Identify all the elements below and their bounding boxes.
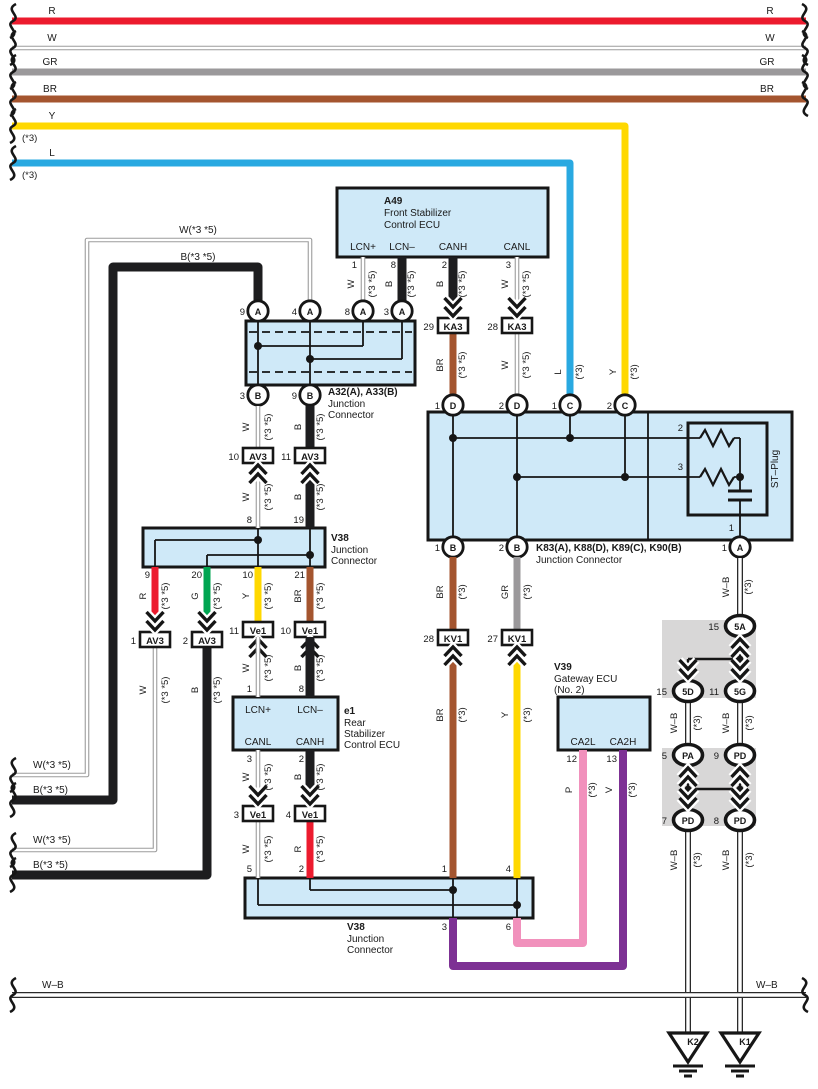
low-b-code: B xyxy=(190,687,201,693)
drop-l-code: L xyxy=(553,369,564,374)
a32-w-note: (*3 *5) xyxy=(263,414,274,441)
ground-k2-label: K2 xyxy=(687,1037,699,1047)
pin-2b-letter: B xyxy=(514,543,521,553)
st-plug-pin2: 2 xyxy=(678,423,683,434)
v38t-num-19: 19 xyxy=(293,515,304,526)
v38t-num-21: 21 xyxy=(294,570,305,581)
st-plug-pin1: 1 xyxy=(729,523,734,534)
v38t-sub2: Connector xyxy=(331,556,378,567)
v38b-num-3: 3 xyxy=(442,922,447,933)
kv1-y-note: (*3) xyxy=(522,707,533,722)
drop-y-note: (*3) xyxy=(629,364,640,379)
ve1-11-name: Ve1 xyxy=(250,626,267,637)
v38-r-note: (*3 *5) xyxy=(160,583,171,610)
pin-2c-num: 2 xyxy=(607,401,612,412)
ve1-w-code: W xyxy=(241,663,252,672)
av3-1-num: 1 xyxy=(131,636,136,647)
ka3-w-code: W xyxy=(500,360,511,369)
e1-name1: Rear xyxy=(344,718,366,729)
pin-1b-letter: B xyxy=(450,543,457,553)
ve1-4-num: 4 xyxy=(286,810,291,821)
v38-top-junction-box xyxy=(143,528,325,567)
v38b-num-4: 4 xyxy=(506,864,511,875)
v39-pin-ca2l: CA2L xyxy=(570,737,595,748)
wb-bus-label-left: W–B xyxy=(42,980,64,991)
bus-label-r-right: R xyxy=(766,6,773,17)
exit2-label-w: W(*3 *5) xyxy=(33,835,71,846)
c5g-num: 11 xyxy=(709,687,719,698)
a32-junction-box xyxy=(246,321,415,385)
c5a-num: 15 xyxy=(708,622,719,633)
av3-w-code: W xyxy=(241,492,252,501)
av3-b-note: (*3 *5) xyxy=(315,484,326,511)
v38b-num-2: 2 xyxy=(299,864,304,875)
st-plug-pin3: 3 xyxy=(678,462,683,473)
e1-num-canh: 2 xyxy=(299,754,304,765)
exit1-label-b: B(*3 *5) xyxy=(33,785,68,796)
gb1-l-note: (*3) xyxy=(692,715,703,730)
av3-11-num: 11 xyxy=(281,452,291,463)
ground-bars-icon xyxy=(673,1066,703,1076)
pin-4a-letter: A xyxy=(307,307,314,317)
v38b-sub1: Junction xyxy=(347,934,384,945)
ka3-29-num: 29 xyxy=(423,322,434,333)
drop-y-code: Y xyxy=(608,368,619,375)
pin-1c-num: 1 xyxy=(552,401,557,412)
drop-l-note: (*3) xyxy=(574,364,585,379)
cpd7-num: 7 xyxy=(662,816,667,827)
v39-name2: (No. 2) xyxy=(554,685,585,696)
gb2-l-note: (*3) xyxy=(692,852,703,867)
v38-br-code: BR xyxy=(293,589,304,602)
loop-label-w: W(*3 *5) xyxy=(179,225,217,236)
st-plug-label: ST–Plug xyxy=(770,450,781,488)
v39-v-code: V xyxy=(604,786,615,793)
e1-ecu: W (*3 *5) B (*3 *5) 1 8 LCN+ LCN– CANL C… xyxy=(234,637,400,878)
e1-code: e1 xyxy=(344,706,356,717)
ka3-28-name: KA3 xyxy=(507,322,526,333)
cpa-num: 5 xyxy=(662,751,667,762)
wiring-diagram-page: R W GR BR Y (*3) L (*3) R W GR BR W(*3 *… xyxy=(0,0,818,1089)
a49-code: A49 xyxy=(384,196,403,207)
gb2-r-note: (*3) xyxy=(744,852,755,867)
gb1-r-note: (*3) xyxy=(744,715,755,730)
a32-b-code: B xyxy=(293,424,304,430)
gb1-r-code: W–B xyxy=(721,713,732,734)
c5g-name: 5G xyxy=(734,687,746,697)
kb-gr-code: GR xyxy=(500,585,511,599)
pin-1b-num: 1 xyxy=(435,543,440,554)
v39-p-code: P xyxy=(564,787,575,793)
ve1-4-name: Ve1 xyxy=(302,810,319,821)
a49-lcnn-code: B xyxy=(384,281,395,287)
kb-wb-code: W–B xyxy=(721,577,732,598)
v38-lower-connectors: 1 AV3 2 AV3 11 Ve1 10 Ve1 R (*3 *5) G (*… xyxy=(131,567,326,703)
pin-2c-letter: C xyxy=(622,401,629,411)
e1-pin-canh: CANH xyxy=(296,737,324,748)
a49-num-lcnn: 8 xyxy=(391,260,396,271)
a49-canh-note: (*3 *5) xyxy=(457,271,468,298)
kv1-y-code: Y xyxy=(500,711,511,718)
a49-num-canh: 2 xyxy=(442,260,447,271)
ka3-w-note: (*3 *5) xyxy=(521,352,532,379)
cpd9-name: PD xyxy=(734,751,747,761)
cpd8-num: 8 xyxy=(714,816,719,827)
v38b-num-1: 1 xyxy=(442,864,447,875)
a49-canl-code: W xyxy=(500,279,511,288)
pin-1d-letter: D xyxy=(450,401,457,411)
pin-9b-num: 9 xyxy=(292,391,297,402)
c5d-name: 5D xyxy=(682,687,694,697)
v38-bottom-junction-box xyxy=(245,878,533,918)
av3-10-num: 10 xyxy=(228,452,239,463)
ve1-3-num: 3 xyxy=(234,810,239,821)
bus-label-l-left: L xyxy=(49,148,55,159)
av3-1-name: AV3 xyxy=(146,636,164,647)
a49-lcnp-note: (*3 *5) xyxy=(367,271,378,298)
e1-num-lcnn: 8 xyxy=(299,684,304,695)
av3-b-code: B xyxy=(293,494,304,500)
low-b-note: (*3 *5) xyxy=(212,677,223,704)
a49-pin-lcnn: LCN– xyxy=(389,242,415,253)
gb2-l-code: W–B xyxy=(669,850,680,871)
kb-gr-note: (*3) xyxy=(522,584,533,599)
v38t-num-10: 10 xyxy=(242,570,253,581)
ground-bars-icon xyxy=(725,1066,755,1076)
v39-v-note: (*3) xyxy=(627,782,638,797)
av3-10-name: AV3 xyxy=(249,452,267,463)
kb-br-code: BR xyxy=(435,585,446,598)
pin-3a-num: 3 xyxy=(384,307,389,318)
bus-note-y: (*3) xyxy=(22,133,37,144)
pin-2d-letter: D xyxy=(514,401,521,411)
v38t-num-8: 8 xyxy=(247,515,252,526)
pin-2d-num: 2 xyxy=(499,401,504,412)
e1-num-canl: 3 xyxy=(247,754,252,765)
e1-canh-note: (*3 *5) xyxy=(315,764,326,791)
break-symbols-left xyxy=(10,4,16,180)
ve1-10-name: Ve1 xyxy=(302,626,319,637)
a49-canl-note: (*3 *5) xyxy=(521,271,532,298)
v38t-title: V38 xyxy=(331,533,349,544)
ve1low-w-code: W xyxy=(241,844,252,853)
kv1-27-num: 27 xyxy=(487,634,498,645)
c5d-num: 15 xyxy=(656,687,667,698)
kb-br-note: (*3) xyxy=(457,584,468,599)
bus-label-w-left: W xyxy=(47,33,57,44)
a32-sub2: Connector xyxy=(328,410,375,421)
loop-label-b: B(*3 *5) xyxy=(180,252,215,263)
pin-8a-letter: A xyxy=(360,307,367,317)
a49-num-lcnp: 1 xyxy=(352,260,357,271)
v38t-num-9: 9 xyxy=(145,570,150,581)
pin-9a-num: 9 xyxy=(240,307,245,318)
gb2-r-code: W–B xyxy=(721,850,732,871)
v38-g-code: G xyxy=(190,592,201,599)
cpd7-name: PD xyxy=(682,816,695,826)
av3-2-name: AV3 xyxy=(198,636,216,647)
bus-label-br-left: BR xyxy=(43,84,57,95)
k83-title: K83(A), K88(D), K89(C), K90(B) xyxy=(536,543,682,554)
a32-w-code: W xyxy=(241,422,252,431)
low-w-note: (*3 *5) xyxy=(160,677,171,704)
v39-num-13: 13 xyxy=(606,754,617,765)
pin-1a-letter: A xyxy=(737,543,744,553)
v39-p-note: (*3) xyxy=(587,782,598,797)
bus-label-br-right: BR xyxy=(760,84,774,95)
a32-b-note: (*3 *5) xyxy=(315,414,326,441)
kv1-br-note: (*3) xyxy=(457,707,468,722)
v38-g-note: (*3 *5) xyxy=(212,583,223,610)
v38-y-note: (*3 *5) xyxy=(263,583,274,610)
cpd9-num: 9 xyxy=(714,751,719,762)
ve1-w-note: (*3 *5) xyxy=(263,655,274,682)
kb-wb-note: (*3) xyxy=(743,579,754,594)
bus-label-gr-left: GR xyxy=(43,57,58,68)
kv1-28-num: 28 xyxy=(423,634,434,645)
ve1-b-code: B xyxy=(293,665,304,671)
v38-r-code: R xyxy=(138,592,149,599)
pin-3b-num: 3 xyxy=(240,391,245,402)
v38b-sub2: Connector xyxy=(347,945,394,956)
cpd8-name: PD xyxy=(734,816,747,826)
ka3-28-num: 28 xyxy=(487,322,498,333)
pin-1d-num: 1 xyxy=(435,401,440,412)
e1-num-lcnp: 1 xyxy=(247,684,252,695)
ka3-br-note: (*3 *5) xyxy=(457,352,468,379)
gb1-l-code: W–B xyxy=(669,713,680,734)
cpa-name: PA xyxy=(682,751,694,761)
ve1-b-note: (*3 *5) xyxy=(315,655,326,682)
a32-title: A32(A), A33(B) xyxy=(328,387,398,398)
pin-1c-letter: C xyxy=(567,401,574,411)
ka3-29-name: KA3 xyxy=(443,322,462,333)
e1-canl-note: (*3 *5) xyxy=(263,764,274,791)
exit-wire-white-under xyxy=(12,647,155,850)
a49-lcnp-code: W xyxy=(346,279,357,288)
a49-pin-canh: CANH xyxy=(439,242,467,253)
v39-num-12: 12 xyxy=(566,754,577,765)
e1-name3: Control ECU xyxy=(344,740,400,751)
k83-sub: Junction Connector xyxy=(536,555,623,566)
e1-canh-code: B xyxy=(293,774,304,780)
bus-label-w-right: W xyxy=(765,33,775,44)
a32-sub1: Junction xyxy=(328,399,365,410)
wiring-diagram: R W GR BR Y (*3) L (*3) R W GR BR W(*3 *… xyxy=(0,0,818,1089)
v38-y-code: Y xyxy=(241,592,252,599)
ve1-11-num: 11 xyxy=(229,626,239,637)
wb-bus-label-right: W–B xyxy=(756,980,778,991)
ve1-3-name: Ve1 xyxy=(250,810,267,821)
bus-note-l: (*3) xyxy=(22,170,37,181)
pin-4a-num: 4 xyxy=(292,307,297,318)
pin-3b-letter: B xyxy=(255,391,262,401)
a49-name2: Control ECU xyxy=(384,220,440,231)
a49-num-canl: 3 xyxy=(506,260,511,271)
ve1low-r-note: (*3 *5) xyxy=(315,836,326,863)
ve1low-w-note: (*3 *5) xyxy=(263,836,274,863)
e1-canl-code: W xyxy=(241,772,252,781)
v38-bottom-junction: 5 2 1 4 V38 Junction Connector 3 6 xyxy=(247,750,623,966)
v38t-sub1: Junction xyxy=(331,545,368,556)
e1-name2: Stabilizer xyxy=(344,729,386,740)
pin-1a-num: 1 xyxy=(722,543,727,554)
exit2-label-b: B(*3 *5) xyxy=(33,860,68,871)
ground-k1: K1 xyxy=(721,1033,759,1076)
kv1-br-code: BR xyxy=(435,708,446,721)
kv1-connectors: 28 KV1 27 KV1 BR (*3) GR (*3) BR (*3) Y … xyxy=(423,557,533,878)
ve1low-r-code: R xyxy=(293,845,304,852)
a49-pin-canl: CANL xyxy=(504,242,531,253)
a49-pin-lcnp: LCN+ xyxy=(350,242,376,253)
low-w-code: W xyxy=(138,685,149,694)
e1-pin-canl: CANL xyxy=(245,737,272,748)
av3-11-name: AV3 xyxy=(301,452,319,463)
v38b-num-6: 6 xyxy=(506,922,511,933)
pin-9a-letter: A xyxy=(255,307,262,317)
v38b-title: V38 xyxy=(347,922,365,933)
v38t-num-20: 20 xyxy=(191,570,202,581)
e1-pin-lcnp: LCN+ xyxy=(245,705,271,716)
pin-8a-num: 8 xyxy=(345,307,350,318)
bus-label-gr-right: GR xyxy=(760,57,775,68)
av3-2-num: 2 xyxy=(183,636,188,647)
av3-w-note: (*3 *5) xyxy=(263,484,274,511)
pin-2b-num: 2 xyxy=(499,543,504,554)
exit1-label-w: W(*3 *5) xyxy=(33,760,71,771)
v39-code: V39 xyxy=(554,662,572,673)
bus-label-r-left: R xyxy=(48,6,55,17)
exit-wire-white-over xyxy=(12,647,155,850)
v39-pin-ca2h: CA2H xyxy=(610,737,637,748)
bus-label-y-left: Y xyxy=(49,111,56,122)
v39-name1: Gateway ECU xyxy=(554,674,617,685)
pin-9b-letter: B xyxy=(307,391,314,401)
ground-k2: K2 xyxy=(669,1033,707,1076)
c5a-name: 5A xyxy=(734,622,746,632)
a49-canh-code: B xyxy=(435,281,446,287)
e1-pin-lcnn: LCN– xyxy=(297,705,323,716)
v38-br-note: (*3 *5) xyxy=(315,583,326,610)
a49-name1: Front Stabilizer xyxy=(384,208,452,219)
v38b-num-5: 5 xyxy=(247,864,252,875)
ka3-br-code: BR xyxy=(435,358,446,371)
ground-k1-label: K1 xyxy=(739,1037,751,1047)
a49-lcnn-note: (*3 *5) xyxy=(406,271,417,298)
kv1-28-name: KV1 xyxy=(444,634,463,645)
ka3-connectors: 29 KA3 28 KA3 BR (*3 *5) W (*3 *5) L (*3… xyxy=(423,298,640,395)
pin-3a-letter: A xyxy=(399,307,406,317)
ve1-10-num: 10 xyxy=(280,626,291,637)
kv1-27-name: KV1 xyxy=(508,634,527,645)
